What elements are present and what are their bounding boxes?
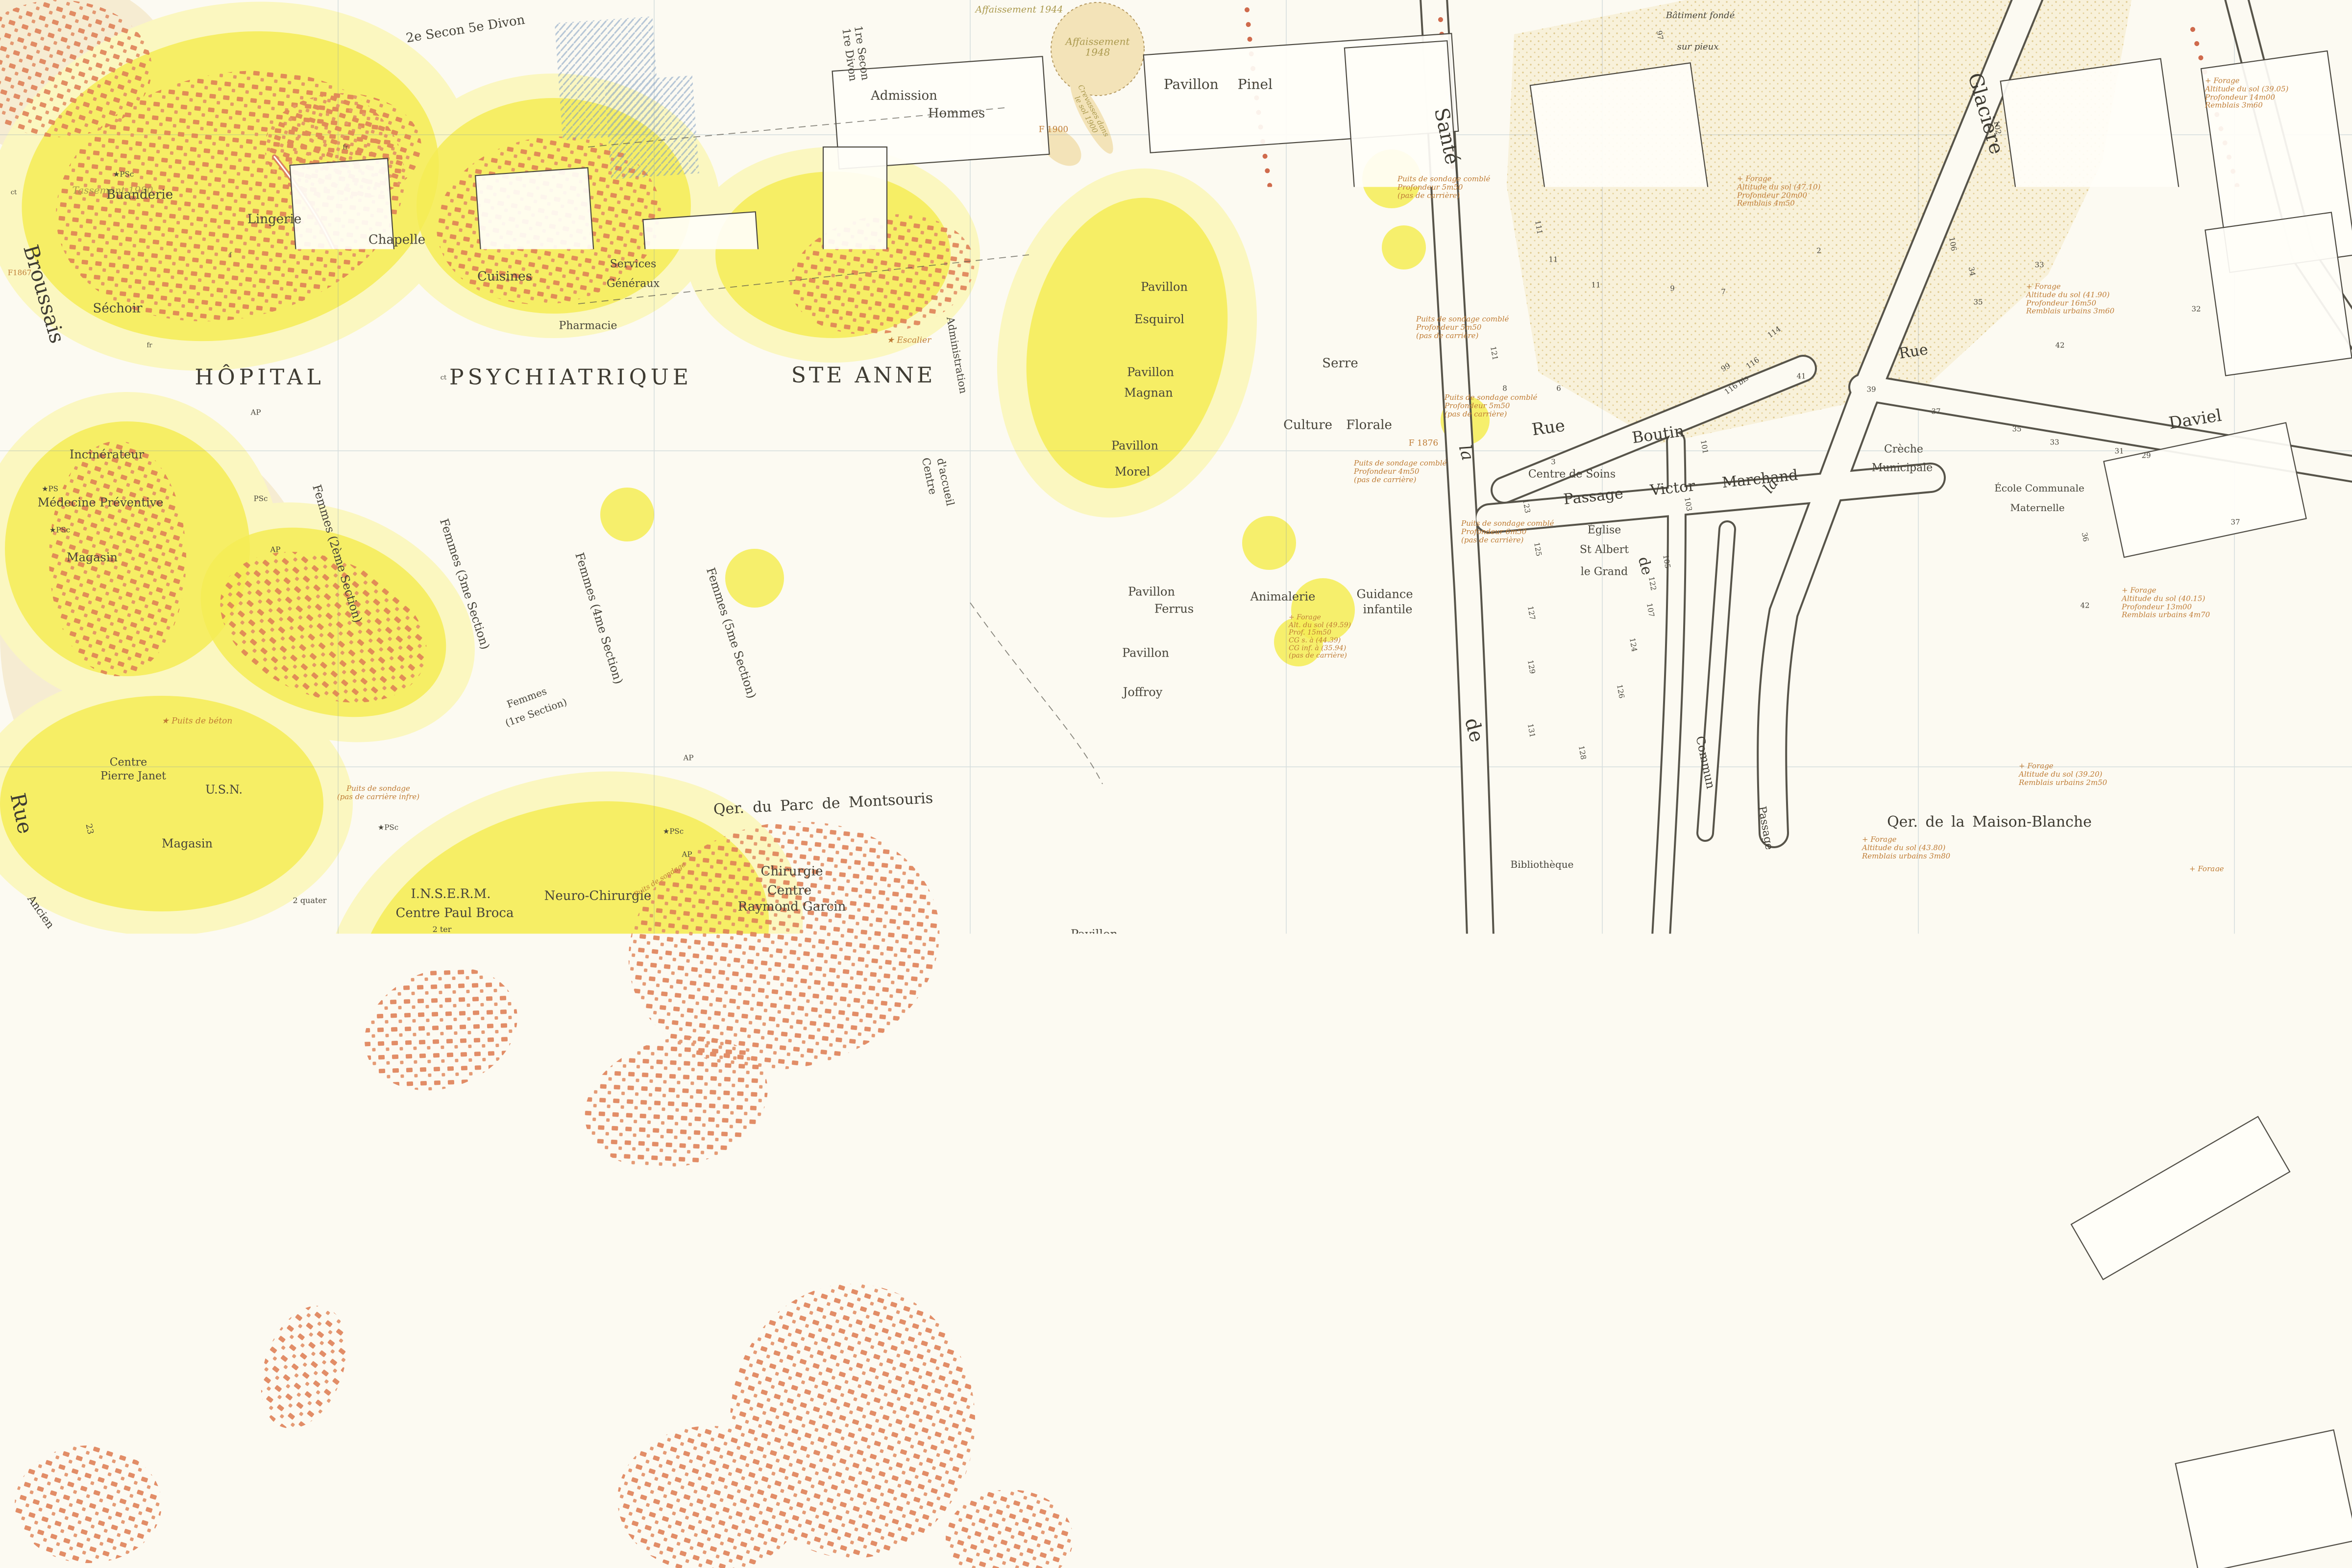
map-label: 124 xyxy=(1628,637,1639,652)
map-label: 241 xyxy=(1742,1344,1758,1358)
map-label: 12 xyxy=(2093,953,2105,965)
map-label: Puits de sondage comblé Profondeur 6m40 … xyxy=(1190,1439,1283,1464)
map-label: Femmes (3me Section) xyxy=(437,517,492,651)
map-label: Ancien xyxy=(24,894,56,931)
map-label: Hall de révision xyxy=(115,1330,232,1344)
map-label: Élémentaire xyxy=(1070,1262,1143,1275)
map-label: voies xyxy=(81,1454,94,1473)
map-label: 232 xyxy=(2131,1331,2148,1346)
map-label: ★PSc xyxy=(663,828,684,836)
map-label: Forage + Altitude du sol (44.25) Remblai… xyxy=(2258,892,2351,916)
map-label: Serre xyxy=(1322,356,1358,370)
map-label: 29 xyxy=(2141,452,2151,460)
map-label: Passage xyxy=(1755,806,1775,851)
map-label: Magnan xyxy=(1124,387,1173,400)
map-label: 231 xyxy=(2337,1469,2352,1483)
map-label: PSc xyxy=(254,495,268,503)
map-label: Crèche xyxy=(1276,1252,1316,1265)
map-label: Bâtiment fondé xyxy=(1666,11,1735,21)
map-label: École Communale xyxy=(1994,483,2084,493)
map-label: 2 xyxy=(1816,247,1821,255)
map-label: 4 xyxy=(1296,1366,1301,1374)
map-label: Clinique de xyxy=(1332,890,1400,904)
map-label: Puits de sondage comblé Profondeur 5m50 … xyxy=(1434,1111,1527,1135)
map-label: Médecine Préventive xyxy=(38,496,164,510)
map-label: Rue xyxy=(2093,1490,2120,1528)
map-label: 245 xyxy=(1676,1329,1692,1343)
map-label: Raymond Garcin xyxy=(738,900,846,914)
map-label: 3 bis xyxy=(969,1168,988,1177)
map-label: Incinérateur xyxy=(70,448,144,462)
map-label: AP xyxy=(871,1323,882,1331)
map-label: Hommes xyxy=(928,106,985,121)
map-label: ★ Escalier xyxy=(887,336,931,345)
map-label: Pavillon Pinel xyxy=(1164,76,1273,92)
map-label: 3 xyxy=(1131,1194,1136,1203)
map-label: Santé xyxy=(1430,106,1463,167)
map-label: 3 xyxy=(1551,458,1556,466)
map-label: + Forage Altitude du sol (43.80) Remblai… xyxy=(1862,835,1950,860)
map-label: Cuisines xyxy=(477,269,532,284)
map-label: 41 xyxy=(1796,372,1806,381)
map-label: Séchoir xyxy=(93,301,143,316)
map-label: 32 xyxy=(2191,305,2201,314)
map-label: Lingerie xyxy=(247,212,302,226)
map-label: 53 xyxy=(1656,1511,1668,1523)
map-label: 11 xyxy=(765,1376,775,1385)
map-label: Chirurgie xyxy=(761,864,823,879)
map-label: Magasin xyxy=(67,551,118,564)
map-label: Administration xyxy=(944,316,969,394)
map-label: Daviel xyxy=(2167,406,2223,433)
map-label: Voies de garage xyxy=(115,1204,202,1217)
city-map: 2e Secon 5e Divon1re Secon 1re DivonTass… xyxy=(0,0,2352,1568)
map-labels: 2e Secon 5e Divon1re Secon 1re DivonTass… xyxy=(0,0,2352,1568)
map-label: d'accueil xyxy=(934,457,956,507)
map-label: ★PS xyxy=(620,1014,637,1022)
map-label: Généraux xyxy=(607,278,660,291)
map-label: Pierre Janet xyxy=(100,771,166,783)
map-label: F 1876 xyxy=(1409,439,1438,448)
map-label: 107 xyxy=(1645,602,1656,617)
map-label: PSc xyxy=(199,1373,213,1381)
map-label: 97 xyxy=(1655,30,1665,41)
map-label: 131 xyxy=(1526,723,1537,738)
map-label: STE ANNE xyxy=(791,363,936,387)
map-label: Ste Anne xyxy=(888,1041,938,1053)
map-label: Guidance xyxy=(1356,588,1413,601)
map-label: Pavillon xyxy=(1122,647,1169,660)
map-label: fr xyxy=(343,145,348,152)
map-label: Magasin xyxy=(162,837,213,851)
map-label: Crèche xyxy=(1884,444,1923,456)
map-label: Pharmacie xyxy=(559,320,617,333)
map-label: 58 xyxy=(1649,1378,1661,1391)
map-label: ★PSc xyxy=(113,171,134,179)
map-label: 2 quater xyxy=(293,896,327,905)
map-label: Puits de sondage comblé Profondeur 6m50 … xyxy=(1461,519,1554,544)
map-label: Square xyxy=(1924,1008,1977,1052)
map-label: Rue xyxy=(1531,416,1566,439)
map-label: Animalerie xyxy=(1250,590,1316,604)
map-label: d'anatomopathologie xyxy=(1159,1087,1274,1100)
map-label: PSYCHIATRIQUE xyxy=(449,365,692,389)
map-label: Puits de sondage xyxy=(633,861,687,899)
map-label: 51 xyxy=(1693,1550,1705,1562)
map-label: 239 xyxy=(1815,1358,1832,1372)
map-label: 11 xyxy=(1591,281,1600,290)
map-label: 123 xyxy=(1521,498,1532,514)
map-label: 42 xyxy=(2080,602,2089,610)
map-label: 233 bis xyxy=(2200,1441,2227,1461)
map-label: 16 xyxy=(1997,881,2009,893)
map-label: 1890 xyxy=(2310,1343,2325,1364)
map-label: de xyxy=(1970,1341,1993,1362)
map-label: 35 xyxy=(2012,425,2021,434)
map-label: + Forage Altitude du sol (47.10) Profond… xyxy=(1737,174,1820,207)
map-label: 17 xyxy=(1912,974,1925,986)
map-label: des xyxy=(55,1266,66,1279)
map-label: 10 bis xyxy=(809,1326,833,1335)
map-label: 2 bis xyxy=(858,1053,877,1062)
map-label: Laboratoire xyxy=(1022,1085,1086,1097)
map-label: Pavillon xyxy=(1111,440,1158,453)
map-label: Rue xyxy=(1462,1038,1492,1080)
map-label: 10 xyxy=(855,1327,864,1336)
map-label: Maternelle xyxy=(2010,502,2064,513)
map-label: 129 xyxy=(1526,659,1537,674)
map-label: Services xyxy=(610,259,657,271)
map-label: AP xyxy=(251,409,261,417)
map-label: 137 xyxy=(1519,898,1532,915)
map-label: 233 xyxy=(2271,1456,2287,1470)
map-label: AP xyxy=(682,851,692,859)
map-label: 235 xyxy=(1896,1375,1912,1390)
map-label: 10 xyxy=(1236,1536,1246,1544)
map-label: + Forage Altitude du sol (40.15) Profond… xyxy=(2122,586,2210,619)
map-label: ★PSc xyxy=(963,1306,984,1314)
map-label: 102 xyxy=(1421,987,1434,1004)
map-label: 3 xyxy=(1181,1413,1186,1421)
map-label: Joffroy xyxy=(1123,686,1163,699)
map-label: + Forage Alt. du sol (49.59) Prof. 15m50… xyxy=(1289,614,1351,660)
map-label: Femmes (5me Section) xyxy=(704,566,759,700)
map-label: 105 xyxy=(1661,554,1672,569)
map-label: 7 xyxy=(1721,288,1726,296)
map-label: Aqueduc xyxy=(302,1147,346,1195)
map-label: 36 xyxy=(2080,532,2090,542)
map-label: ★PSc xyxy=(378,824,398,832)
map-label: + Forage Altitude du sol (41.90) Profond… xyxy=(2026,282,2114,315)
map-label: 8 xyxy=(1502,385,1507,393)
map-label: 33 xyxy=(2050,439,2059,447)
map-label: «Glacière» xyxy=(1517,885,1570,896)
map-label: Morel xyxy=(1115,465,1150,479)
map-label: Ste Anne xyxy=(1259,1289,1308,1301)
map-label: 27 bis xyxy=(2111,1537,2124,1561)
map-label: Pavillon xyxy=(1071,928,1118,941)
map-label: de xyxy=(1460,715,1488,744)
map-label: Maison xyxy=(1815,1430,1862,1444)
map-label: Service social xyxy=(867,1028,943,1040)
map-label: la xyxy=(1455,443,1477,463)
map-label: sur pieux xyxy=(1677,42,1719,52)
map-label: 122 xyxy=(1647,576,1658,591)
map-label: 9 xyxy=(1670,285,1675,293)
map-label: 31 xyxy=(2114,447,2124,456)
map-label: d'Arcueil xyxy=(169,1499,193,1559)
map-label: Pavillon xyxy=(1127,366,1174,379)
map-label: 99 xyxy=(1720,362,1732,373)
map-label: la Faculté xyxy=(1337,914,1396,928)
map-label: Technique xyxy=(767,948,833,962)
map-label: St Albert xyxy=(1580,544,1629,557)
map-label: PSc xyxy=(702,957,716,965)
map-label: 4 bis xyxy=(1258,1364,1275,1372)
map-label: le Grand xyxy=(1581,566,1628,579)
map-label: 37 xyxy=(2230,518,2240,527)
map-label: fr xyxy=(921,1323,927,1331)
map-label: Communales xyxy=(1061,1218,1139,1231)
map-label: Sondage en pied Prof. 3m40 (pas de carri… xyxy=(878,1369,963,1404)
map-label: U.S.N. xyxy=(205,784,243,797)
map-label: I.N.S.E.R.M. xyxy=(411,887,490,901)
map-label: 2 ter xyxy=(433,925,452,934)
map-label: 23 xyxy=(83,823,95,835)
map-label: Bât. C xyxy=(2295,1555,2323,1565)
map-label: 126 xyxy=(1615,684,1626,699)
map-label: 128 xyxy=(1577,745,1588,760)
map-label: 116 bis xyxy=(1723,374,1750,396)
map-label: Centre de Soins xyxy=(1528,469,1616,481)
map-label: Reille xyxy=(1227,1381,1268,1400)
map-label: 1 bis xyxy=(1397,1244,1416,1253)
map-label: 56 xyxy=(1686,1420,1698,1432)
map-label: 1 xyxy=(1232,1417,1237,1425)
map-label: Boutin xyxy=(1631,422,1685,447)
map-label: Affaissement 1944 xyxy=(976,4,1063,15)
map-label: Maternelle xyxy=(966,1262,1031,1275)
map-label: ct xyxy=(11,190,17,197)
map-label: 34 xyxy=(1967,266,1977,277)
map-label: 8 xyxy=(1271,1492,1275,1500)
map-label: + Forage Altitude du sol (44.35) Remblai… xyxy=(2257,970,2350,995)
map-label: 237 xyxy=(1852,1368,1868,1382)
map-label: 6 xyxy=(1302,1445,1307,1454)
map-label: F 1900 xyxy=(1039,125,1068,134)
map-label: Ancien lit xyxy=(2137,1367,2157,1406)
map-label: R.E.R. Ligne B (Ligne de Sceaux) xyxy=(34,1393,127,1568)
map-label: + Forage Altitude du sol (44.40) Remblai… xyxy=(2189,865,2278,889)
map-label: Wurtz xyxy=(2270,1188,2299,1236)
map-label: 15 xyxy=(1907,1025,1919,1037)
map-label: 106 xyxy=(1947,236,1958,251)
map-label: Puits de sondage (pas de carrière infre) xyxy=(337,784,419,801)
map-label: 127 xyxy=(1526,605,1537,620)
map-label: Puits de sondage comblé Profondeur 5m50 … xyxy=(1397,175,1490,199)
map-label: d'Alésia xyxy=(1156,1148,1228,1181)
map-label: 2e Secon 5e Divon xyxy=(405,13,526,46)
map-label: Église xyxy=(1588,525,1621,537)
map-label: AP xyxy=(270,546,281,554)
map-label: 125 xyxy=(1532,541,1543,557)
map-label: km 2.500 xyxy=(46,1382,84,1396)
map-label: André xyxy=(2045,1054,2092,1094)
map-label: ★PSc xyxy=(841,1345,861,1353)
map-label: Glacière xyxy=(1963,71,2008,157)
map-label: ★ Puits de béton xyxy=(162,716,233,726)
map-label: ★PSc xyxy=(49,526,70,535)
map-label: 18 xyxy=(1941,932,1953,945)
map-label: douteuse xyxy=(748,1532,788,1549)
map-label: 35 xyxy=(1973,298,1983,307)
map-label: AP xyxy=(970,1275,980,1284)
map-label: + Forage Altitude du sol (39.20) Remblai… xyxy=(2019,762,2107,786)
map-label: Qer. du Parc de Montsouris xyxy=(713,790,933,818)
map-label: Affaissement 1948 xyxy=(1065,36,1129,58)
map-label: 8 xyxy=(2243,945,2248,953)
map-label: AP xyxy=(684,754,694,762)
map-label: de xyxy=(1635,555,1655,577)
map-label: 11 xyxy=(2054,1042,2066,1054)
map-label: Broussais xyxy=(19,242,69,345)
map-label: Qer. de la Maison-Blanche xyxy=(1887,814,2092,831)
map-label: 111 xyxy=(1533,220,1544,235)
map-label: 27 xyxy=(2157,1477,2167,1488)
map-label: Centre xyxy=(110,757,147,769)
map-label: Chapelle xyxy=(368,233,425,247)
map-label: fr xyxy=(147,343,152,350)
map-label: Tolbiac xyxy=(2240,1402,2311,1437)
map-label: f xyxy=(229,252,232,260)
map-label: 230 xyxy=(2227,1344,2243,1358)
map-label: Culture Florale xyxy=(1283,418,1392,432)
map-label: F1867 xyxy=(8,269,32,277)
map-label: 39 xyxy=(1866,386,1876,394)
map-label: 7 xyxy=(1021,1395,1026,1404)
map-label: 11 xyxy=(1548,256,1558,264)
map-label: Michelet xyxy=(1884,1484,1940,1498)
map-label: 5 xyxy=(1099,1404,1103,1412)
map-label: Pavillon xyxy=(1128,586,1175,599)
map-label: 55 xyxy=(1611,1442,1623,1454)
map-label: Municipale xyxy=(1872,463,1933,475)
map-label: Emplacement xyxy=(2178,1521,2203,1568)
map-label: 54 xyxy=(1708,1452,1720,1464)
map-label: + Forage Altitude du sol (39.05) Profond… xyxy=(2205,76,2288,109)
map-label: Puits de sondage comblé Profondeur 6m20 … xyxy=(1127,1540,1219,1565)
map-label: Admission xyxy=(871,89,937,103)
map-label: 116 xyxy=(1744,356,1761,370)
map-label: ★PS xyxy=(42,485,58,493)
map-label: 1er xyxy=(1283,1222,1297,1231)
map-label: Ferrus xyxy=(1154,603,1194,616)
map-label: Commun xyxy=(1693,735,1717,790)
map-label: Maternelle xyxy=(1988,1431,2048,1444)
map-label: 14 xyxy=(2054,902,2066,914)
map-label: Pavillon xyxy=(1141,281,1188,294)
map-label: Dreyer xyxy=(2111,1128,2163,1172)
map-label: Rue xyxy=(6,791,37,835)
map-label: 2 xyxy=(1334,1371,1339,1379)
map-label: Bât. B xyxy=(2214,1547,2242,1557)
map-label: Rue xyxy=(1898,342,1929,363)
map-label: 102 xyxy=(1992,120,2003,135)
map-label: Buanderie xyxy=(106,188,173,202)
map-label: Rue de l'Amiral Mouchez xyxy=(1478,1367,1511,1555)
map-label: 101 xyxy=(1699,439,1710,454)
map-label: Crevasses dans le sol 1900 xyxy=(1069,83,1111,142)
map-label: 42 xyxy=(2055,342,2064,350)
map-label: Puits de sondage comblé Profondeur 5m50 … xyxy=(1416,315,1509,340)
map-label: Benjamin Ball xyxy=(1047,971,1130,984)
map-label: Femmes (2ème Section) xyxy=(310,483,364,624)
map-label: HÔPITAL xyxy=(195,365,324,389)
map-label: Puits de sondage comblé Profondeur 4m50 … xyxy=(1354,459,1446,484)
map-label: ct xyxy=(1008,1293,1015,1300)
map-label: Discothèque xyxy=(1511,872,1573,883)
map-label: 52 xyxy=(1788,1543,1801,1555)
map-label: Passage xyxy=(1758,921,1781,970)
map-label: 1re Secon 1re Divon xyxy=(839,25,871,83)
map-label: 228 xyxy=(2293,1368,2309,1382)
map-label: 103 xyxy=(1683,496,1693,512)
map-label: Rue xyxy=(1591,1352,1623,1384)
map-label: 33 xyxy=(2034,261,2044,269)
map-label: infantile xyxy=(1363,603,1413,616)
map-label: Centre xyxy=(767,883,811,898)
map-label: Esquirol xyxy=(1134,313,1184,326)
map-label: Impasse xyxy=(991,1366,1050,1386)
map-label: Pont transbordeur xyxy=(109,1277,218,1291)
map-label: 37 xyxy=(1931,408,1940,416)
map-label: Puits de sondage comblé Profondeur 5m50 … xyxy=(1445,393,1537,418)
map-label: Centre Paul Broca xyxy=(396,906,514,920)
map-label: 9 xyxy=(453,1055,458,1064)
map-label: km 2.400 xyxy=(25,1153,63,1167)
map-label: Femmes (4me Section) xyxy=(572,551,625,686)
map-label: 7 ter xyxy=(502,1067,521,1076)
map-label: 6 xyxy=(1556,385,1561,393)
map-label: ct xyxy=(441,375,447,382)
map-label: R.A.T.P. xyxy=(3,1230,36,1288)
map-label: 1 xyxy=(1511,1265,1516,1274)
map-label: 121 xyxy=(1489,345,1499,361)
map-label: Gymnase xyxy=(1779,970,1829,982)
map-label: d'électroencéphalographie xyxy=(981,1101,1127,1113)
map-label: 2 xyxy=(1236,1107,1241,1116)
map-label: Laboratoire xyxy=(1169,1063,1233,1076)
map-label: Écoles xyxy=(974,1218,1013,1231)
map-label: Bibliothèque xyxy=(1510,859,1573,870)
map-label: 114 xyxy=(1766,325,1782,340)
map-label: 6 xyxy=(2277,996,2282,1004)
